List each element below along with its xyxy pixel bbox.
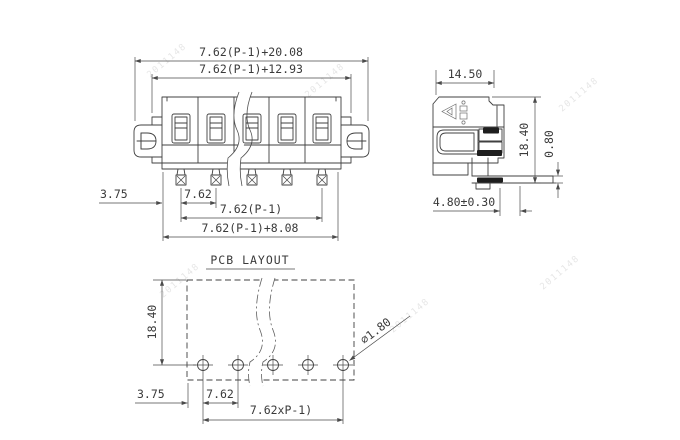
pin bbox=[211, 169, 221, 185]
front-pins bbox=[176, 169, 327, 185]
dim-front-pitch: 7.62 bbox=[181, 187, 216, 222]
side-view: 14.50 18.40 0.80 4.80±0.30 bbox=[433, 67, 563, 216]
technical-drawing: 2011148 2011148 2011148 2011148 2011148 … bbox=[0, 0, 680, 440]
view-title: PCB LAYOUT bbox=[210, 253, 289, 267]
contact-window bbox=[278, 114, 296, 143]
brand-logo-mark bbox=[483, 128, 499, 134]
front-left-flange bbox=[134, 117, 162, 163]
cert-mark-icon bbox=[462, 121, 465, 124]
cert-mark-icon bbox=[460, 106, 467, 111]
cert-mark-icon bbox=[460, 113, 467, 119]
dim-label: 7.62 bbox=[206, 387, 234, 401]
contact-window bbox=[313, 114, 331, 143]
dim-label: 14.50 bbox=[448, 67, 483, 81]
dim-front-edge-to-pin: 3.75 bbox=[99, 172, 163, 241]
pcb-hole bbox=[333, 355, 353, 424]
dim-label: 7.62(P-1) bbox=[220, 202, 282, 216]
dim-label: 7.62 bbox=[184, 187, 212, 201]
brand-logo-mark bbox=[477, 150, 502, 156]
pin-plating-mark bbox=[477, 178, 503, 183]
dim-label: 7.62(P-1)+8.08 bbox=[202, 221, 299, 235]
dim-pcb-pitch: 7.62 bbox=[203, 387, 238, 403]
contact-windows bbox=[172, 114, 331, 143]
dim-label: 18.40 bbox=[517, 123, 531, 158]
front-right-flange bbox=[341, 117, 369, 163]
watermarks: 2011148 2011148 2011148 2011148 2011148 … bbox=[146, 42, 602, 336]
dim-label: 0.80 bbox=[542, 130, 556, 158]
dim-label: 7.62(P-1)+12.93 bbox=[199, 62, 303, 76]
dim-label: 3.75 bbox=[137, 387, 165, 401]
pcb-layout-title: PCB LAYOUT bbox=[206, 253, 295, 269]
watermark-text: 2011148 bbox=[389, 297, 433, 336]
drawing-canvas: 2011148 2011148 2011148 2011148 2011148 … bbox=[0, 0, 680, 440]
dim-side-pin-thickness: 0.80 bbox=[542, 130, 563, 198]
dim-label: 4.80±0.30 bbox=[433, 195, 495, 209]
pin bbox=[247, 169, 257, 185]
watermark-text: 2011148 bbox=[539, 254, 583, 293]
contact-window bbox=[207, 114, 225, 143]
contact-window bbox=[172, 114, 190, 143]
dim-side-depth: 14.50 bbox=[436, 67, 494, 95]
dim-label: ∅1.80 bbox=[358, 315, 394, 347]
pin bbox=[282, 169, 292, 185]
dim-label: 7.62(P-1)+20.08 bbox=[199, 45, 303, 59]
pcb-hole bbox=[263, 355, 283, 375]
recycling-triangle-icon bbox=[442, 104, 456, 119]
dim-pcb-edge-to-hole: 3.75 bbox=[135, 383, 188, 408]
dim-label: 18.40 bbox=[145, 305, 159, 340]
dim-label: 3.75 bbox=[100, 187, 128, 201]
watermark-text: 2011148 bbox=[558, 76, 602, 115]
pcb-hole bbox=[298, 355, 318, 375]
dim-label: 7.62xP-1) bbox=[250, 403, 312, 417]
cert-mark-icon bbox=[462, 101, 465, 104]
pin bbox=[317, 169, 327, 185]
pin bbox=[176, 169, 186, 185]
dim-pcb-hole-span: 7.62xP-1) bbox=[203, 403, 343, 420]
dim-side-pin-length: 4.80±0.30 bbox=[433, 186, 532, 216]
watermark-text: 2011148 bbox=[159, 262, 203, 301]
recycling-triangle-icon bbox=[447, 108, 452, 115]
watermark-text: 2011148 bbox=[304, 62, 348, 101]
